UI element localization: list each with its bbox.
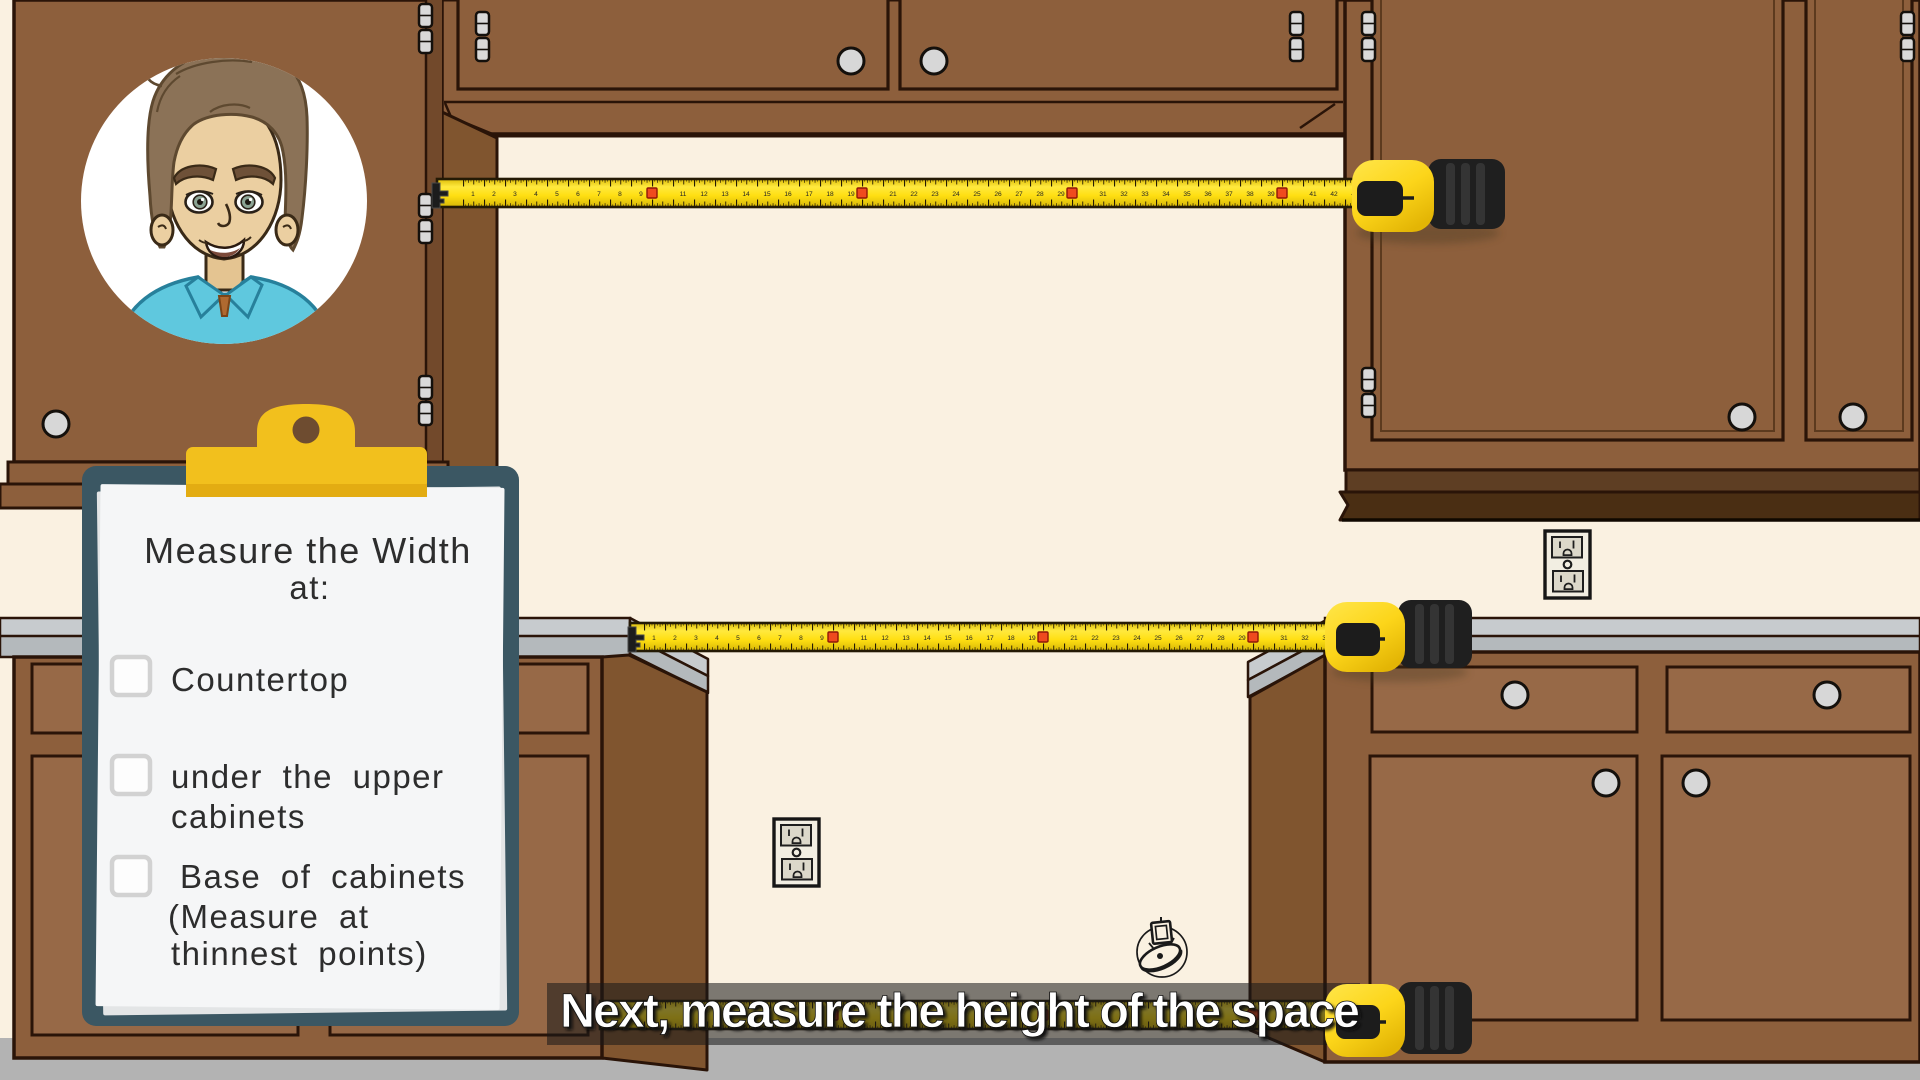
svg-text:19: 19	[847, 191, 855, 198]
svg-text:8: 8	[799, 635, 803, 642]
svg-text:17: 17	[986, 635, 994, 642]
svg-text:7: 7	[597, 191, 601, 198]
svg-text:29: 29	[1238, 635, 1246, 642]
svg-text:15: 15	[763, 191, 771, 198]
svg-text:19: 19	[1028, 635, 1036, 642]
svg-text:11: 11	[861, 635, 868, 642]
svg-text:26: 26	[1175, 635, 1183, 642]
svg-text:7: 7	[778, 635, 782, 642]
svg-text:9: 9	[820, 635, 824, 642]
svg-text:1: 1	[471, 191, 475, 198]
svg-text:26: 26	[994, 191, 1002, 198]
svg-text:13: 13	[902, 635, 910, 642]
svg-text:Measure the Width: Measure the Width	[144, 530, 472, 571]
svg-text:28: 28	[1036, 191, 1044, 198]
svg-text:31: 31	[1099, 191, 1107, 198]
svg-text:29: 29	[1057, 191, 1065, 198]
svg-text:12: 12	[700, 191, 708, 198]
svg-text:21: 21	[889, 191, 897, 198]
svg-text:8: 8	[618, 191, 622, 198]
svg-text:34: 34	[1162, 191, 1170, 198]
svg-text:2: 2	[492, 191, 496, 198]
svg-text:thinnest points): thinnest points)	[171, 935, 428, 972]
svg-text:11: 11	[680, 191, 687, 198]
svg-text:5: 5	[736, 635, 740, 642]
svg-text:6: 6	[576, 191, 580, 198]
svg-text:12: 12	[881, 635, 889, 642]
svg-text:4: 4	[534, 191, 538, 198]
svg-text:16: 16	[965, 635, 973, 642]
svg-text:5: 5	[555, 191, 559, 198]
svg-text:35: 35	[1183, 191, 1191, 198]
svg-text:27: 27	[1015, 191, 1023, 198]
svg-text:1: 1	[652, 635, 656, 642]
svg-text:24: 24	[952, 191, 960, 198]
svg-text:42: 42	[1330, 191, 1338, 198]
svg-text:24: 24	[1133, 635, 1141, 642]
svg-text:16: 16	[784, 191, 792, 198]
svg-text:28: 28	[1217, 635, 1225, 642]
svg-text:at:: at:	[289, 569, 330, 606]
svg-text:22: 22	[910, 191, 918, 198]
svg-text:38: 38	[1246, 191, 1254, 198]
svg-text:23: 23	[931, 191, 939, 198]
svg-text:Next, measure the height of th: Next, measure the height of the space	[560, 984, 1360, 1038]
svg-text:23: 23	[1112, 635, 1120, 642]
svg-text:18: 18	[1007, 635, 1015, 642]
svg-text:17: 17	[805, 191, 813, 198]
svg-text:21: 21	[1070, 635, 1078, 642]
svg-text:14: 14	[742, 191, 750, 198]
svg-text:31: 31	[1280, 635, 1288, 642]
svg-text:25: 25	[973, 191, 981, 198]
svg-text:cabinets: cabinets	[171, 798, 306, 835]
svg-text:13: 13	[721, 191, 729, 198]
svg-text:36: 36	[1204, 191, 1212, 198]
svg-text:25: 25	[1154, 635, 1162, 642]
svg-text:32: 32	[1301, 635, 1309, 642]
svg-text:41: 41	[1309, 191, 1317, 198]
svg-text:3: 3	[513, 191, 517, 198]
svg-text:3: 3	[694, 635, 698, 642]
svg-text:39: 39	[1267, 191, 1275, 198]
svg-text:9: 9	[639, 191, 643, 198]
svg-text:4: 4	[715, 635, 719, 642]
svg-text:22: 22	[1091, 635, 1099, 642]
svg-text:37: 37	[1225, 191, 1233, 198]
svg-text:Countertop: Countertop	[171, 661, 349, 698]
svg-text:14: 14	[923, 635, 931, 642]
svg-text:under the upper: under the upper	[171, 758, 445, 795]
svg-text:Base of cabinets: Base of cabinets	[180, 858, 466, 895]
svg-text:18: 18	[826, 191, 834, 198]
svg-text:2: 2	[673, 635, 677, 642]
svg-text:6: 6	[757, 635, 761, 642]
svg-text:(Measure at: (Measure at	[168, 898, 370, 935]
svg-text:15: 15	[944, 635, 952, 642]
svg-text:32: 32	[1120, 191, 1128, 198]
svg-text:27: 27	[1196, 635, 1204, 642]
svg-text:33: 33	[1141, 191, 1149, 198]
